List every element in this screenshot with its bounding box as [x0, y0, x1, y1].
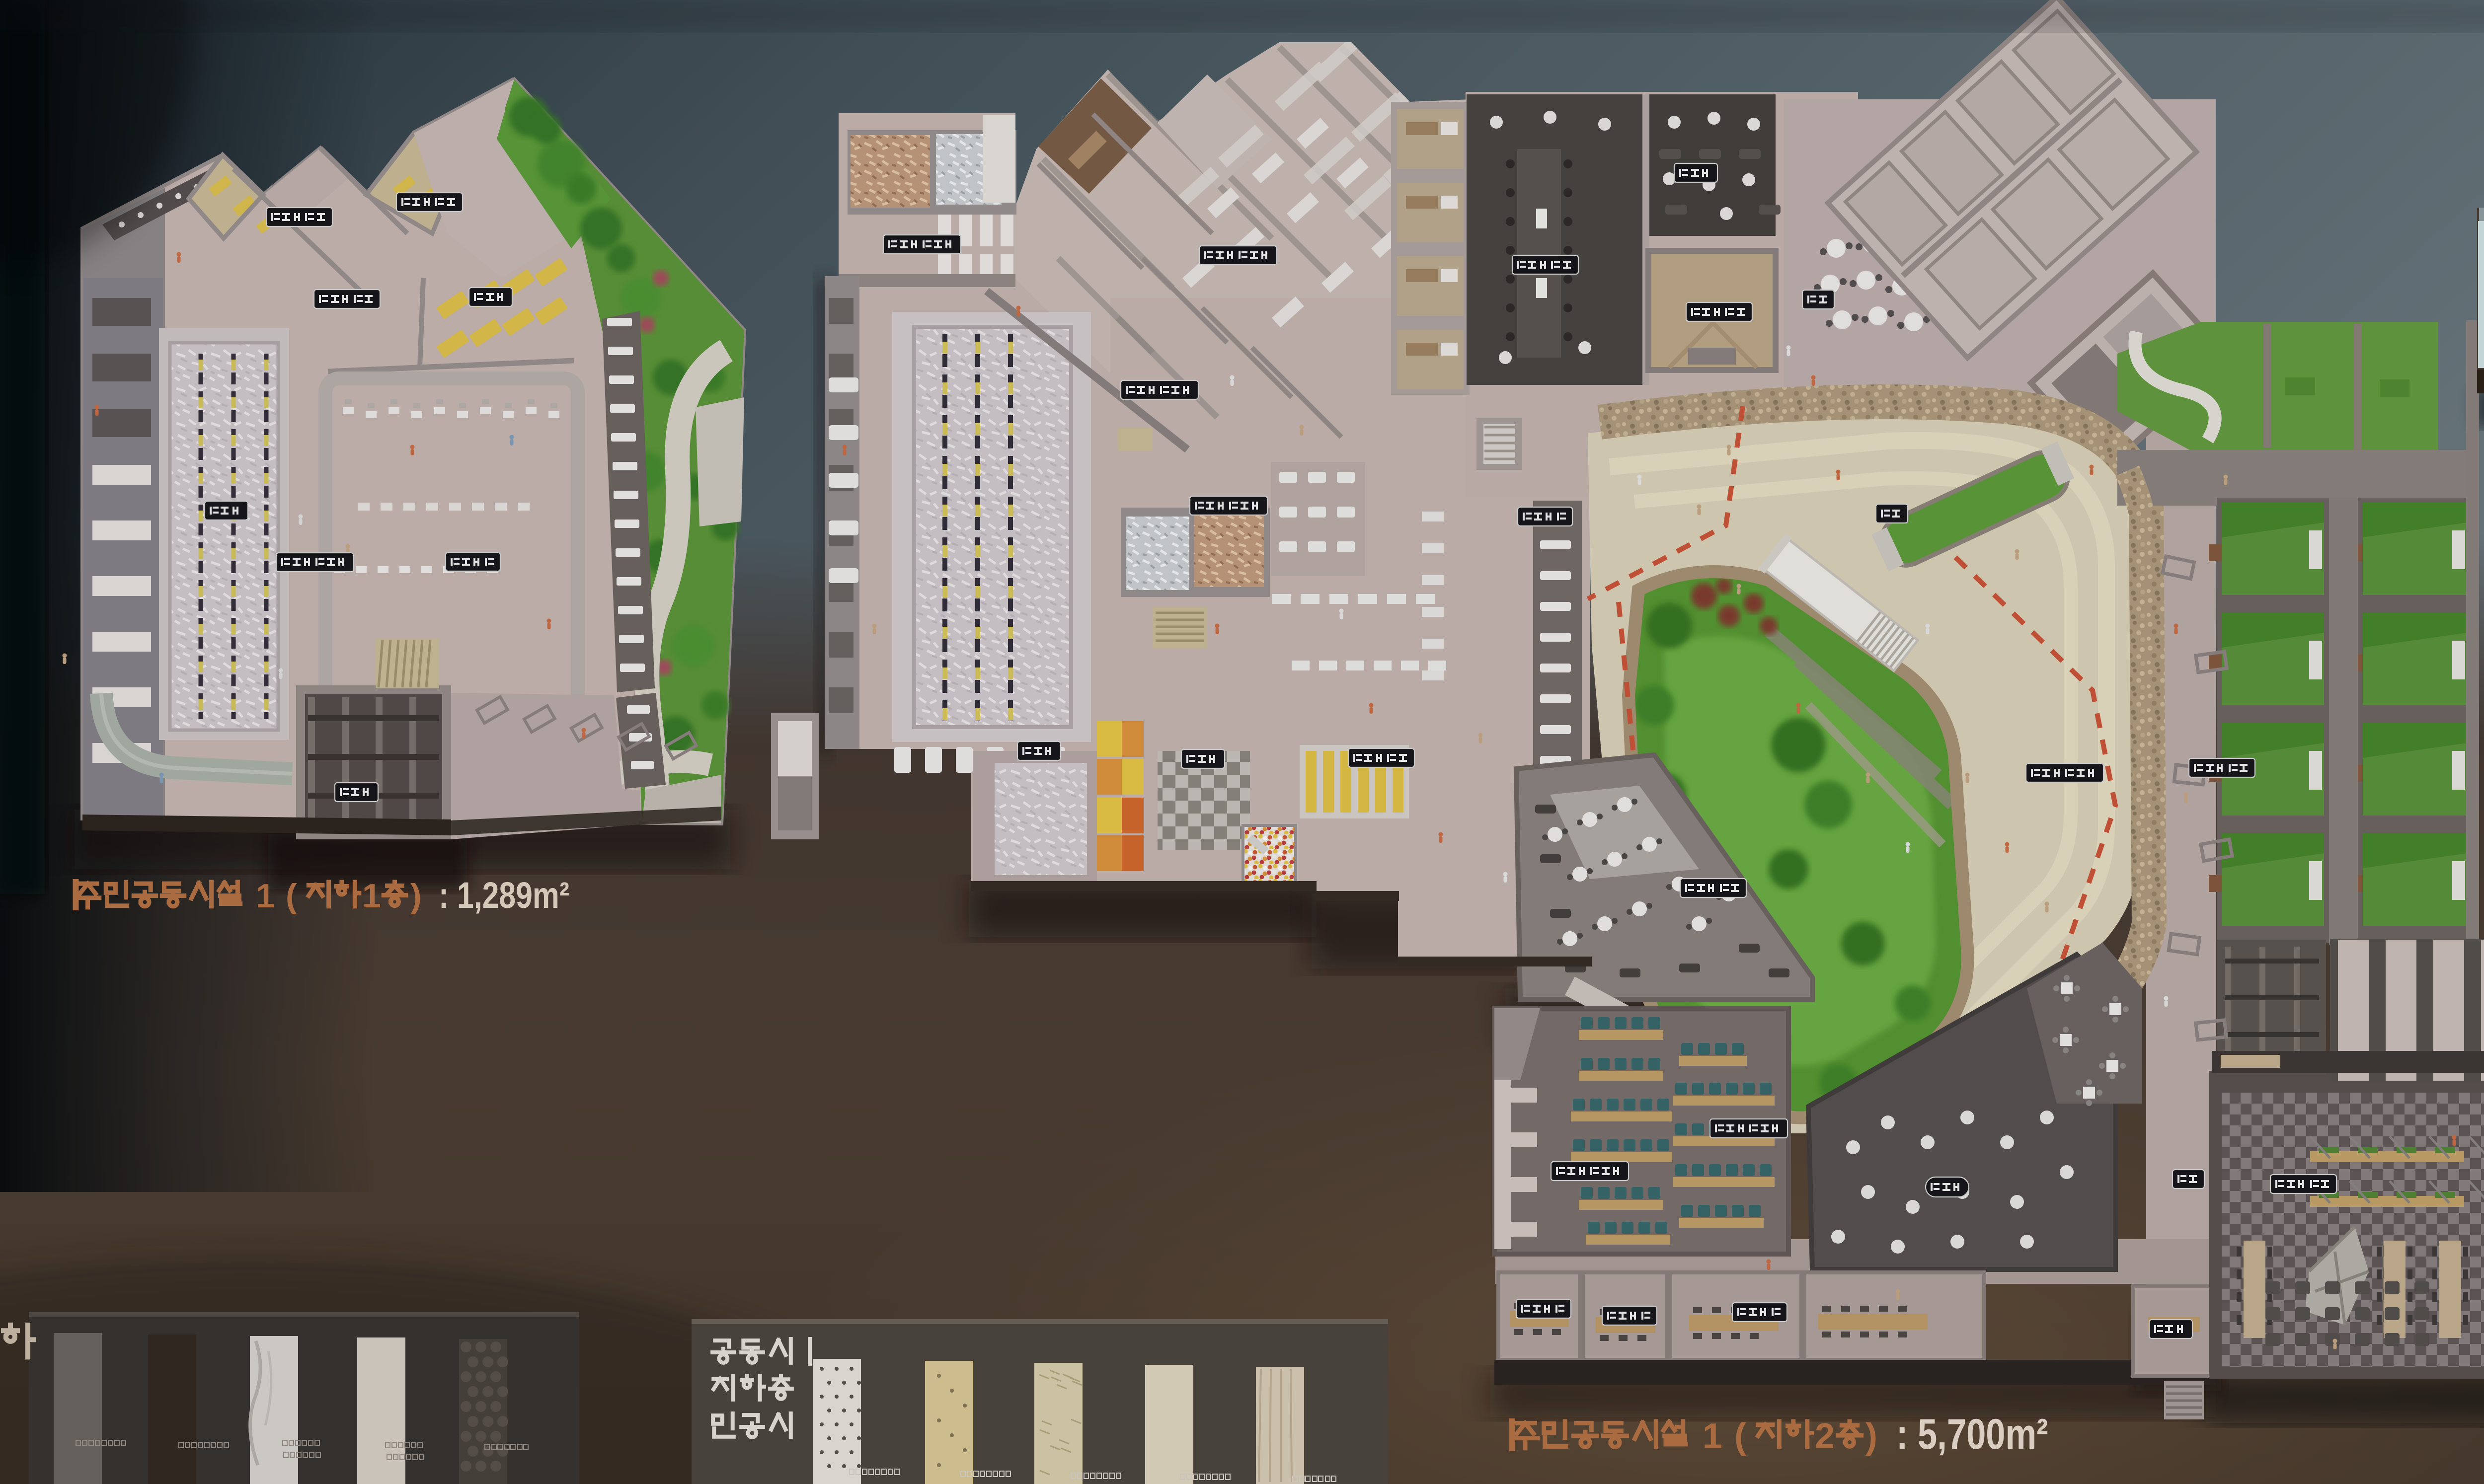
svg-text:): ) [410, 877, 422, 915]
svg-text:: 1,289m²: : 1,289m² [439, 875, 569, 916]
svg-text:2: 2 [1815, 1416, 1835, 1456]
svg-text:1: 1 [256, 877, 275, 915]
svg-text:(: ( [1734, 1416, 1746, 1456]
svg-text:: 5,700m²: : 5,700m² [1896, 1410, 2048, 1458]
svg-text:1: 1 [1703, 1416, 1722, 1456]
svg-text:1: 1 [362, 877, 381, 915]
svg-text:): ) [1865, 1416, 1877, 1456]
svg-text:(: ( [286, 877, 297, 915]
